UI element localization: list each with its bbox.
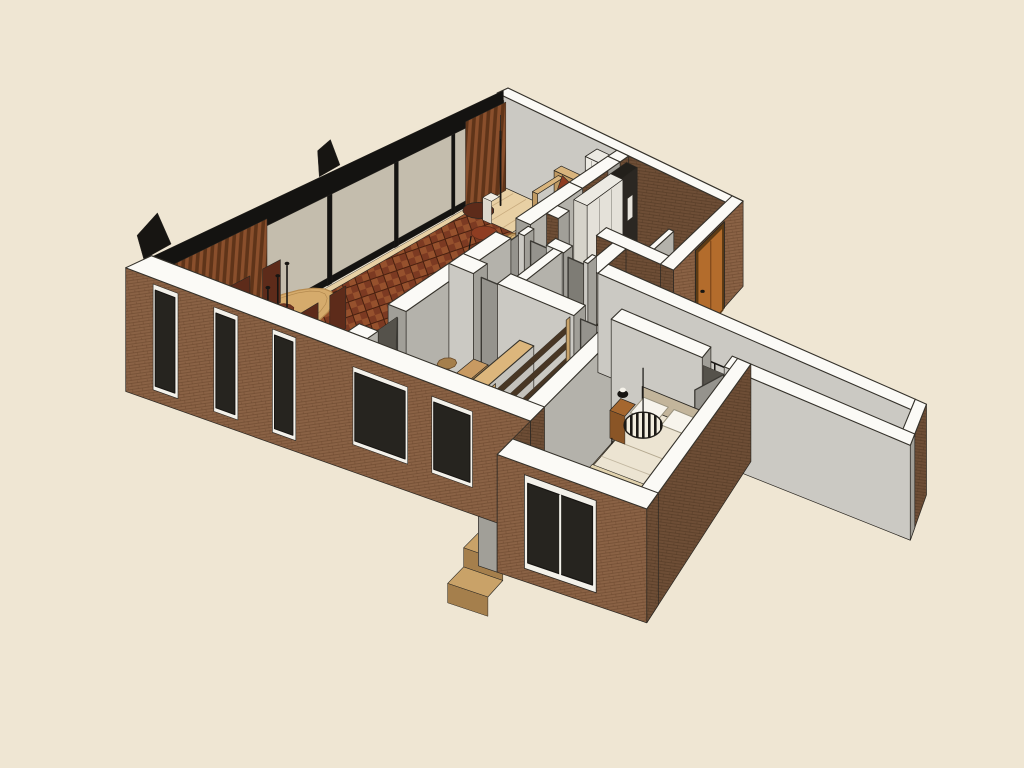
apartment-3d-cutaway-render — [0, 0, 1024, 768]
entry-wardrobe-dark-paper — [628, 195, 633, 221]
pendant-dome-lamp — [624, 412, 662, 438]
sw-window-slot-2 — [275, 335, 293, 435]
front-door-handle — [700, 290, 704, 293]
facade-mullion-1 — [452, 124, 456, 216]
nightstand-lamp-glow-0 — [620, 388, 626, 393]
floorplan-scene — [0, 0, 1024, 768]
sw-window-slot-1 — [216, 313, 235, 415]
w10-seg-b-face-end — [910, 434, 915, 540]
facade-mullion-2 — [394, 151, 398, 248]
dining-candle-top-0 — [285, 262, 290, 265]
dining-candle-top-2 — [265, 286, 270, 289]
side-table-white-face — [483, 198, 492, 225]
dining-candle-top-1 — [275, 274, 280, 277]
facade-mullion-3 — [327, 183, 332, 286]
sw-window-stairs — [434, 402, 470, 482]
sw-window-slot-0 — [155, 290, 175, 393]
w18-bedroom-sw-face-end — [647, 493, 659, 623]
